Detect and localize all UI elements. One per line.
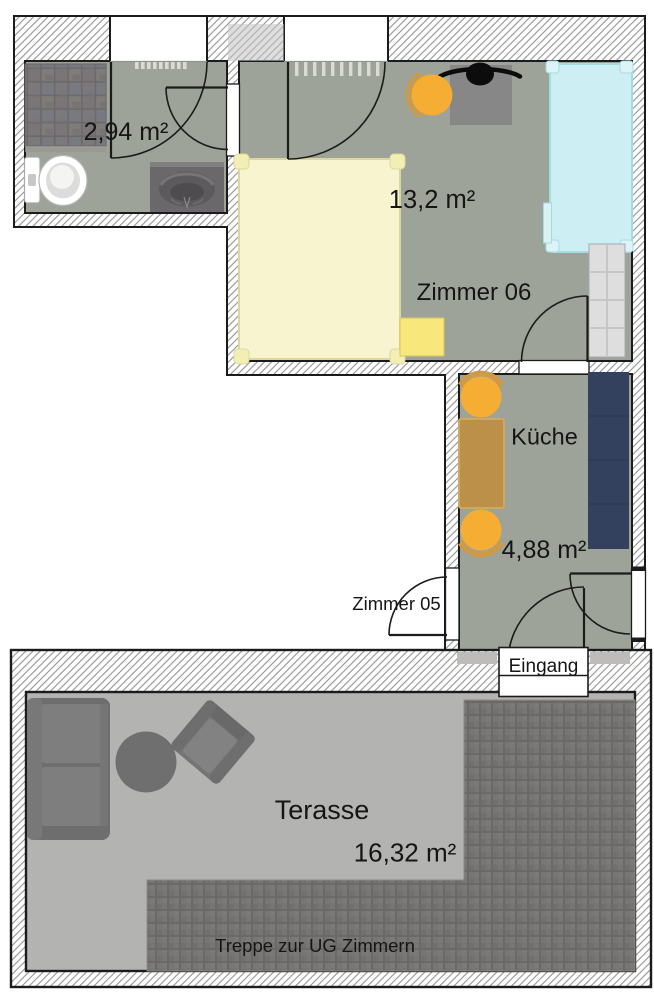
- svg-text:Eingang: Eingang: [509, 656, 579, 677]
- svg-text:2,94 m²: 2,94 m²: [84, 118, 169, 146]
- svg-text:13,2 m²: 13,2 m²: [389, 186, 475, 214]
- svg-text:Terasse: Terasse: [275, 795, 370, 825]
- svg-text:Treppe zur UG Zimmern: Treppe zur UG Zimmern: [215, 935, 415, 956]
- svg-text:Zimmer 05: Zimmer 05: [352, 593, 440, 614]
- svg-text:Zimmer 06: Zimmer 06: [417, 279, 532, 306]
- svg-text:4,88 m²: 4,88 m²: [502, 536, 587, 564]
- svg-text:Küche: Küche: [511, 424, 578, 450]
- svg-text:16,32 m²: 16,32 m²: [354, 838, 457, 868]
